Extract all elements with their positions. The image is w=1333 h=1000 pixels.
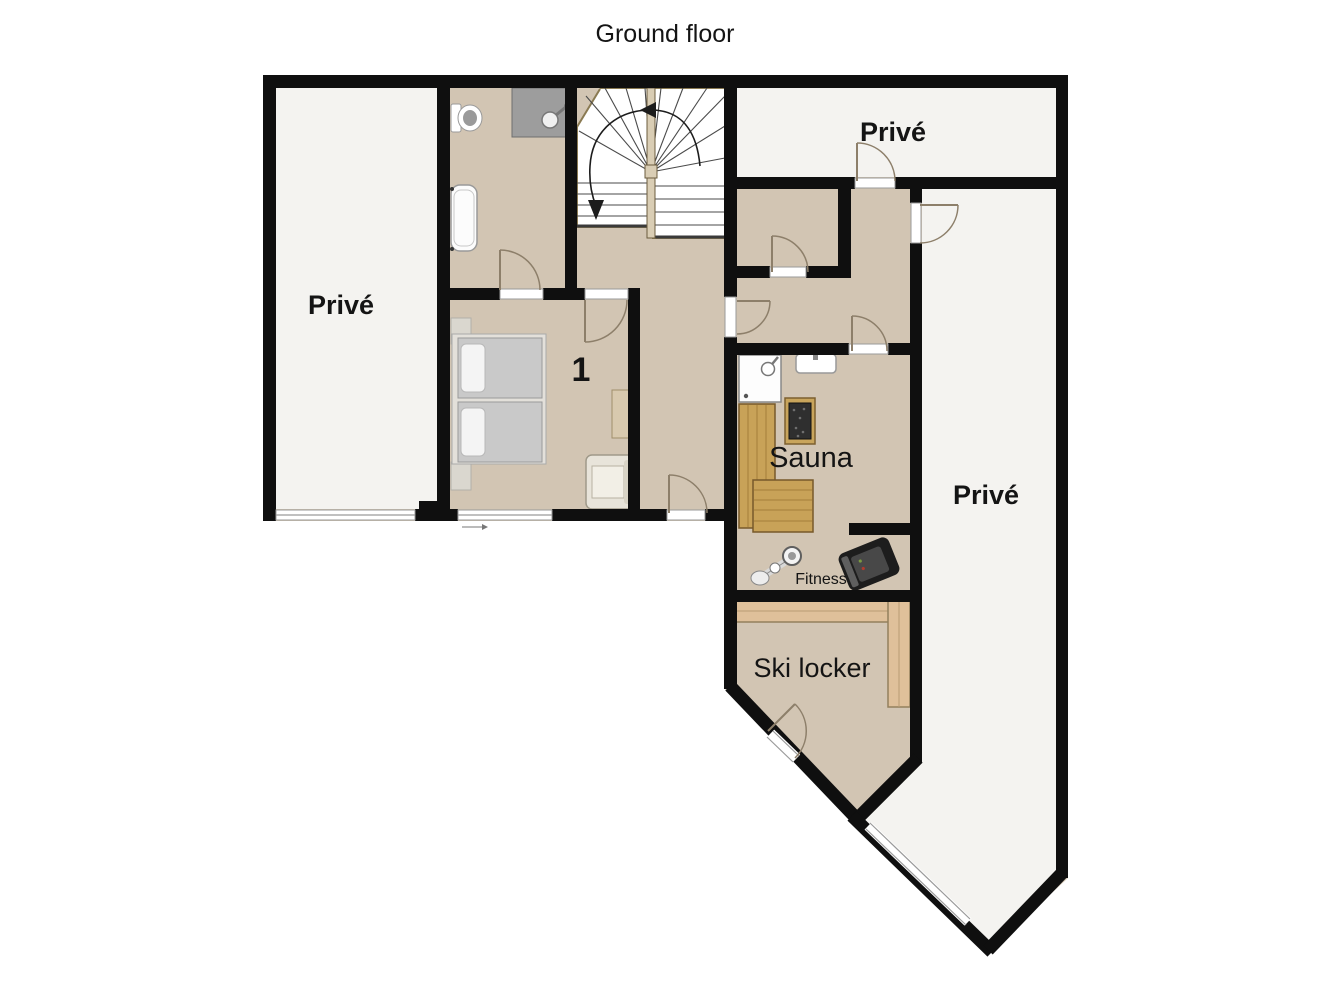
label-ski-locker: Ski locker [753, 653, 870, 683]
sink-icon [796, 353, 836, 373]
shower-icon [739, 355, 781, 402]
label-prive-top: Privé [860, 117, 926, 147]
pillow [461, 344, 485, 392]
label-prive-right: Privé [953, 480, 1019, 510]
bathtub-icon [450, 185, 477, 251]
toilet-icon [451, 104, 482, 132]
window [276, 510, 415, 520]
label-sauna: Sauna [769, 442, 854, 474]
double-bed [452, 334, 546, 464]
sliding-window [458, 510, 552, 530]
pillow [461, 408, 485, 456]
page-title: Ground floor [596, 20, 735, 48]
stairs-newel [645, 165, 657, 178]
shower-icon [512, 88, 572, 137]
sauna-heater-icon [785, 398, 815, 444]
stairs [577, 88, 725, 238]
label-bedroom-number: 1 [572, 351, 591, 389]
floor-plan: Ground floor Privé Privé Privé 1 Sauna F… [0, 0, 1333, 1000]
floor-plan-page: Ground floor Privé Privé Privé 1 Sauna F… [0, 0, 1333, 1000]
nightstand [451, 462, 471, 490]
label-fitness: Fitness [795, 571, 847, 588]
label-prive-left: Privé [308, 290, 374, 320]
